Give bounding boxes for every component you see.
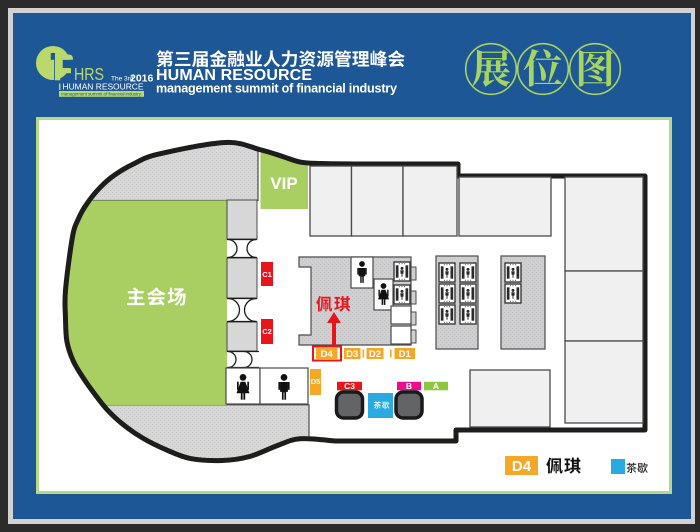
svg-text:D5: D5 [311,377,321,386]
svg-text:C2: C2 [262,327,272,336]
svg-text:B: B [406,381,412,391]
svg-text:D2: D2 [369,349,381,360]
svg-text:D4: D4 [321,349,334,360]
svg-text:D4: D4 [512,458,532,475]
svg-text:D3: D3 [346,349,358,360]
svg-text:C3: C3 [344,381,355,391]
svg-text:VIP: VIP [270,174,297,193]
svg-text:A: A [433,381,439,391]
svg-text:D1: D1 [399,349,412,360]
svg-text:C1: C1 [262,270,272,279]
